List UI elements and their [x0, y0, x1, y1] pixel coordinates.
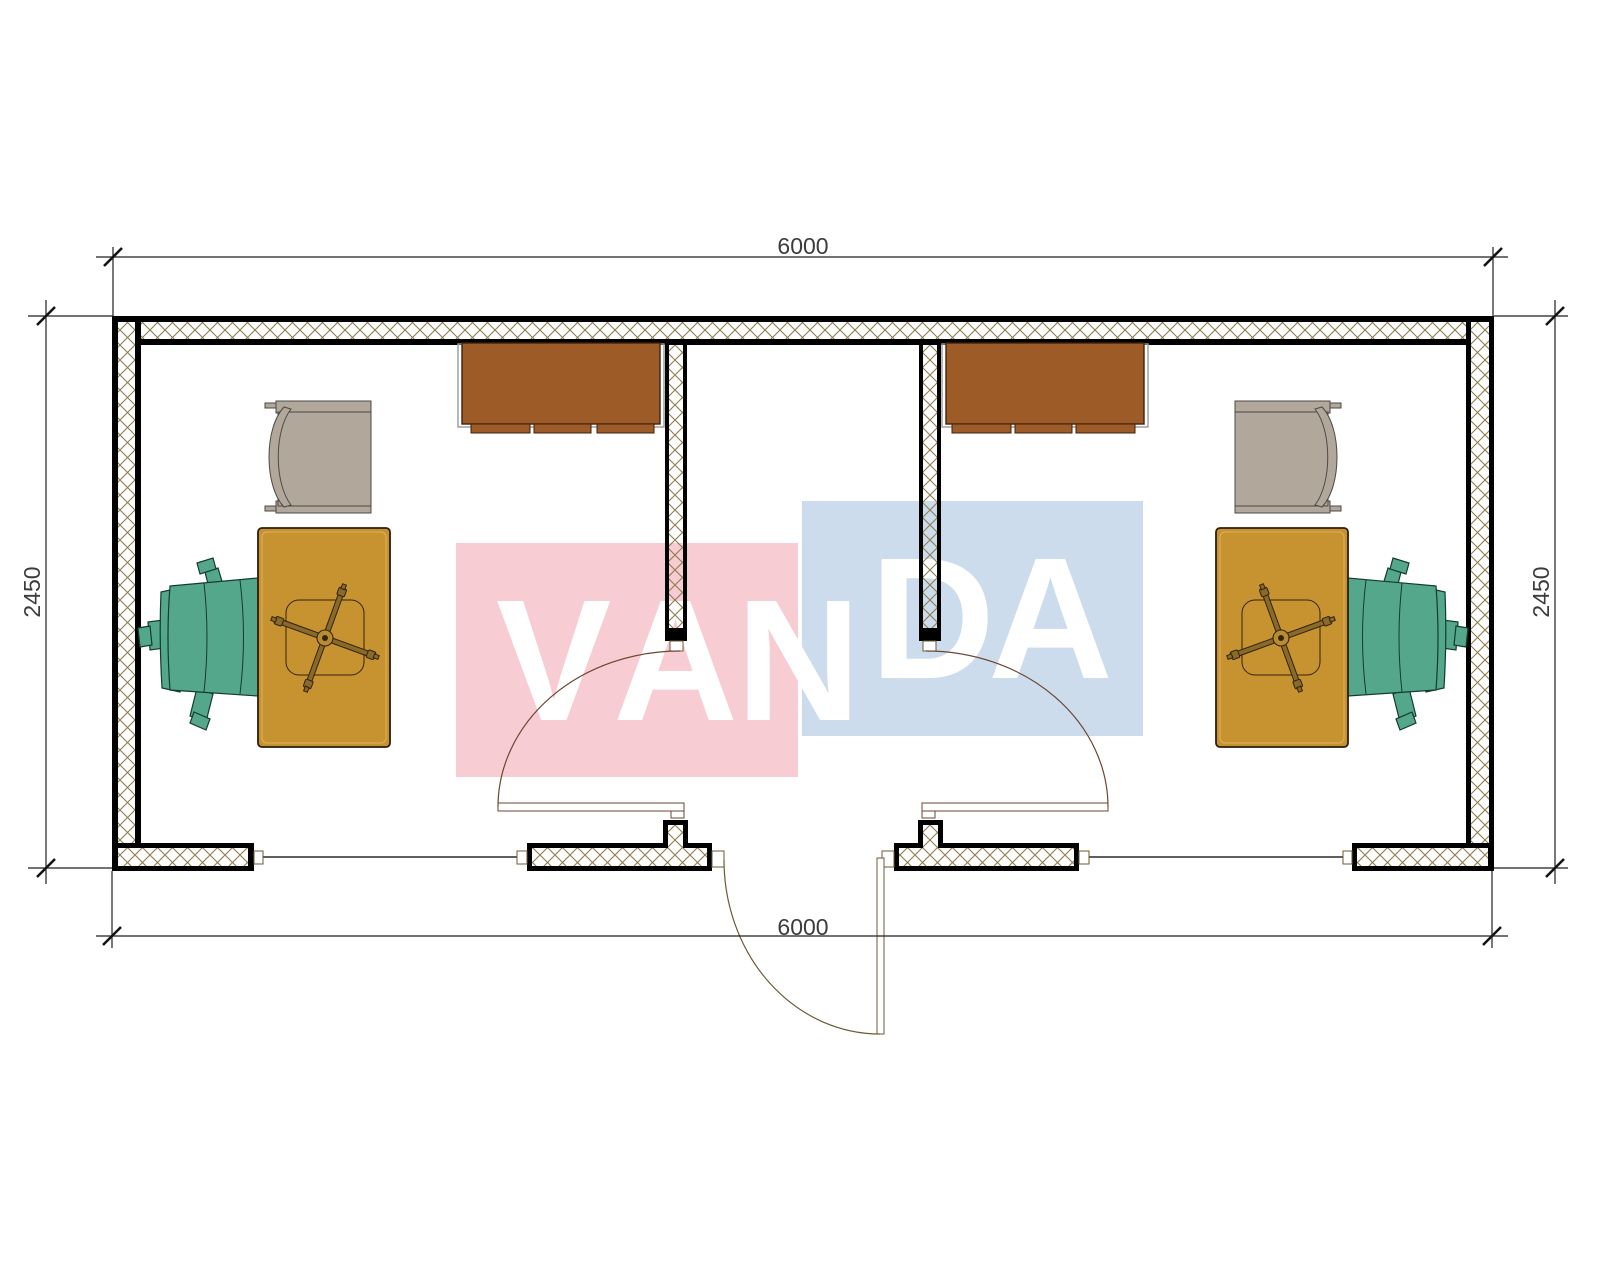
svg-text:DA: DA: [870, 521, 1113, 715]
svg-text:2450: 2450: [1528, 566, 1554, 617]
svg-text:6000: 6000: [777, 233, 828, 259]
svg-text:6000: 6000: [777, 914, 828, 940]
svg-text:2450: 2450: [19, 566, 45, 617]
